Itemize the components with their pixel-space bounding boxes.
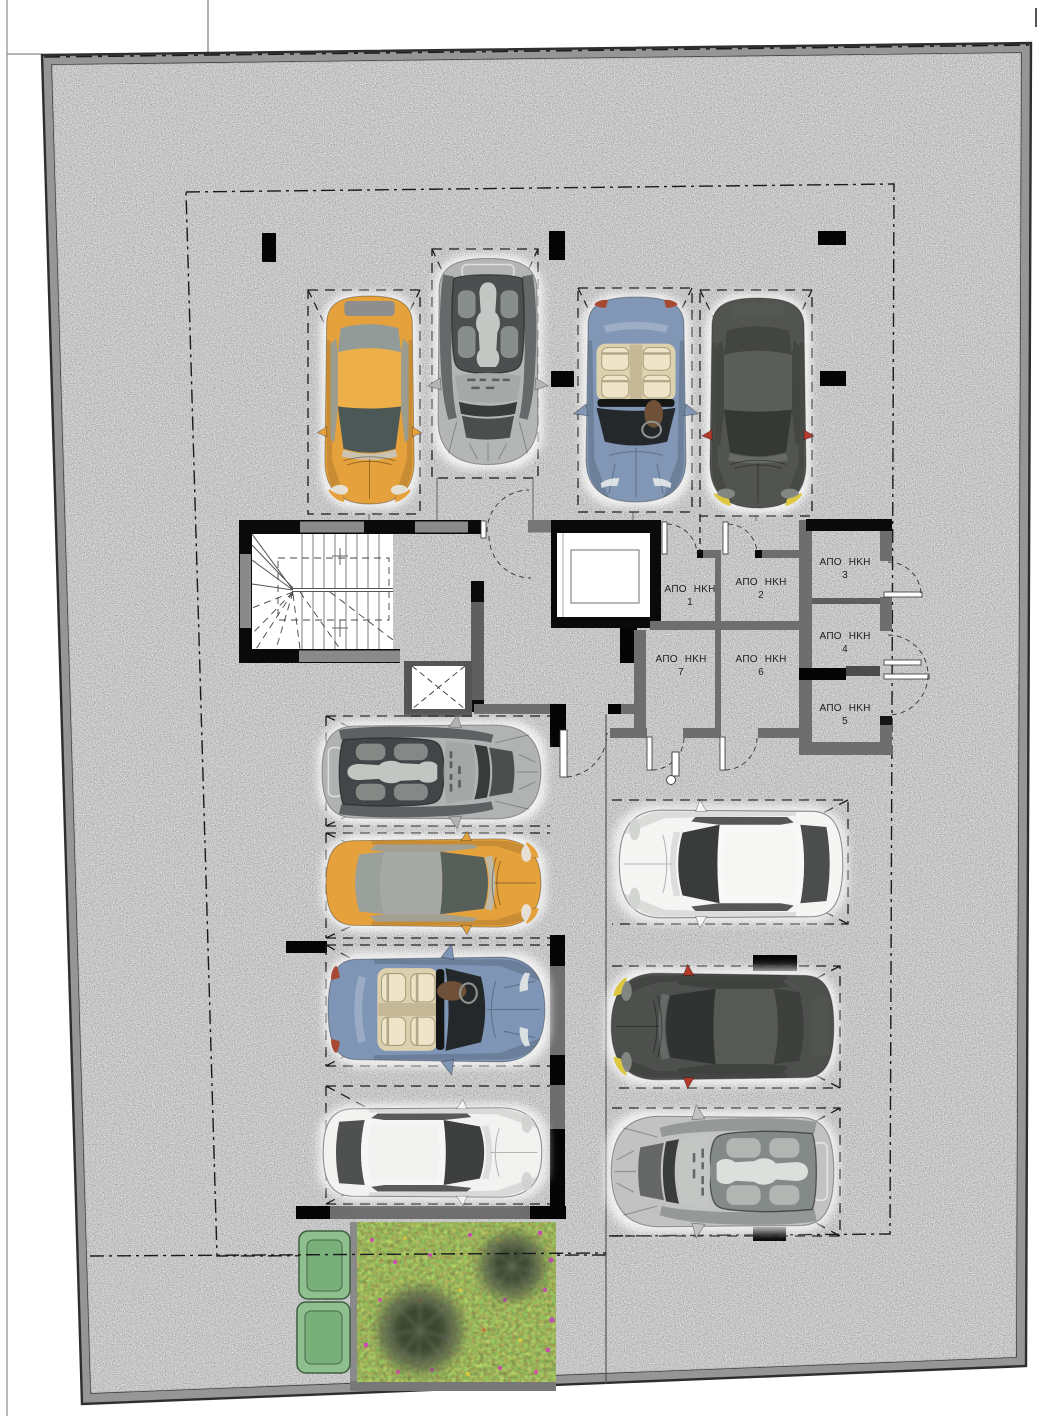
svg-text:6: 6	[758, 667, 764, 678]
svg-text:7: 7	[678, 667, 684, 678]
svg-text:1: 1	[687, 597, 693, 608]
svg-text:2: 2	[758, 590, 764, 601]
svg-text:4: 4	[842, 644, 848, 655]
svg-text:5: 5	[842, 716, 848, 727]
svg-text:3: 3	[842, 570, 848, 581]
